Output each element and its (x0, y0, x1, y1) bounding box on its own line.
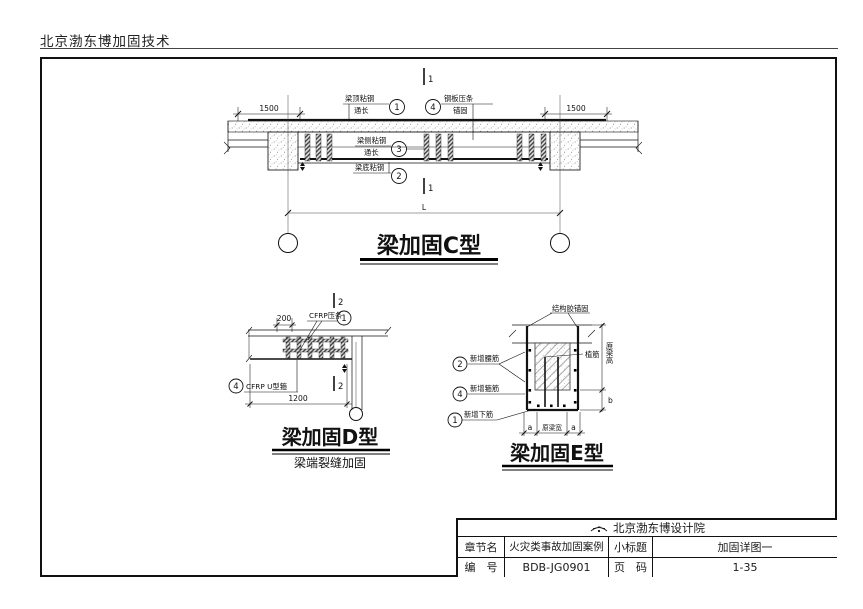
e-label-dowel-text: 植筋 (585, 350, 600, 359)
c-label-side-plate-text: 梁侧粘钢 (357, 136, 386, 145)
page-value: 1-35 (653, 558, 837, 578)
d-dim-200: 200 (273, 314, 296, 332)
c-label-batten-text2: 锚固 (453, 106, 468, 115)
c-label-batten: 4 钢板压条 锚固 (426, 94, 494, 140)
c-dim-left: 1500 (233, 104, 305, 121)
subtitle-label: 小标题 (609, 537, 653, 558)
e-callout-1: 1 (452, 416, 457, 426)
c-dim-span-text: L (422, 203, 427, 212)
d-callout-1: 1 (341, 314, 346, 324)
number-label: 编 号 (458, 558, 505, 578)
c-label-side-plate: 梁侧粘钢 通长 3 (355, 136, 424, 157)
e-label-waist: 2 新增腰筋 (453, 352, 525, 382)
title-block-header: 北京渤东博设计院 (458, 520, 837, 537)
d-label-strip-text: CFRP压条 (309, 311, 343, 320)
d-section-marker-bottom: 2 (338, 382, 343, 392)
institute-logo-icon (590, 523, 608, 533)
drawing-sheet: 北京渤东博加固技术 1 1 (0, 0, 863, 609)
c-dim-left-text: 1500 (259, 104, 278, 113)
d-type-drawing: 2 2 200 (229, 293, 391, 470)
e-label-adhesive-text: 结构胶锚固 (552, 304, 588, 313)
e-callout-4: 4 (457, 390, 462, 400)
d-title: 梁加固D型 (281, 425, 379, 449)
d-subtitle: 梁端裂缝加固 (294, 455, 366, 470)
c-axis: L (279, 95, 570, 253)
c-title: 梁加固C型 (376, 234, 481, 259)
c-callout-3: 3 (396, 145, 401, 155)
e-dim-a-left: a (528, 423, 533, 432)
c-label-top-plate: 梁顶粘钢 通长 1 (343, 94, 405, 119)
e-callout-2: 2 (457, 360, 462, 370)
camber-mark (342, 364, 347, 373)
e-dim-height: 原梁高 b (580, 323, 615, 413)
c-dim-right: 1500 (540, 104, 612, 121)
e-label-adhesive: 结构胶锚固 (527, 304, 590, 327)
e-dim-width: a 原梁宽 a (519, 412, 585, 436)
d-label-u-wrap: 4 CFRP U型箍 (229, 360, 298, 393)
d-callout-4: 4 (233, 382, 238, 392)
e-dim-height-text: 原梁高 (605, 342, 614, 365)
camber-mark (538, 162, 543, 171)
page-label: 页 码 (609, 558, 653, 578)
c-callout-1: 1 (394, 103, 399, 113)
e-type-drawing: 结构胶锚固 植筋 2 新增腰筋 4 (448, 304, 615, 470)
institute-name: 北京渤东博设计院 (613, 520, 705, 536)
d-dim-200-text: 200 (277, 314, 292, 323)
e-dim-width-text: 原梁宽 (542, 423, 562, 432)
c-u-wrap-strips (305, 134, 546, 161)
c-label-bottom-plate-text: 梁底粘钢 (355, 163, 384, 172)
d-cfrp-strips (283, 337, 348, 358)
c-label-side-plate-text2: 通长 (364, 148, 379, 157)
e-label-bottom-text: 新增下筋 (464, 410, 493, 419)
title-block-table: 章节名 火灾类事故加固案例 小标题 加固详图一 编 号 BDB-JG0901 页… (458, 537, 837, 577)
c-label-bottom-plate: 梁底粘钢 2 (353, 162, 407, 184)
camber-mark (300, 162, 305, 171)
c-callout-2: 2 (396, 172, 401, 182)
c-type-drawing: 1 1 (224, 68, 642, 264)
chapter-label: 章节名 (458, 537, 505, 558)
e-label-bottom: 1 新增下筋 (448, 409, 535, 427)
title-block: 北京渤东博设计院 章节名 火灾类事故加固案例 小标题 加固详图一 编 号 BDB… (456, 518, 837, 577)
c-dim-right-text: 1500 (566, 104, 585, 113)
d-dim-1200-text: 1200 (288, 394, 307, 403)
d-label-u-wrap-text: CFRP U型箍 (246, 382, 288, 391)
e-label-stirrup: 4 新增箍筋 (453, 384, 525, 401)
e-label-stirrup-text: 新增箍筋 (470, 384, 499, 393)
c-label-top-plate-text: 梁顶粘钢 (345, 94, 374, 103)
e-dim-b-text: b (608, 396, 613, 405)
c-section-marker-bottom: 1 (428, 184, 433, 194)
e-title: 梁加固E型 (509, 441, 604, 465)
number-value: BDB-JG0901 (505, 558, 609, 578)
chapter-value: 火灾类事故加固案例 (505, 537, 609, 558)
d-section-marker-top: 2 (338, 298, 343, 308)
c-label-batten-text: 钢板压条 (444, 94, 474, 103)
subtitle-value: 加固详图一 (653, 537, 837, 558)
e-label-waist-text: 新增腰筋 (470, 354, 499, 363)
e-dim-a-right: a (571, 423, 576, 432)
c-label-top-plate-text2: 通长 (354, 106, 369, 115)
c-section-marker-top: 1 (428, 75, 433, 85)
c-callout-4: 4 (430, 103, 435, 113)
